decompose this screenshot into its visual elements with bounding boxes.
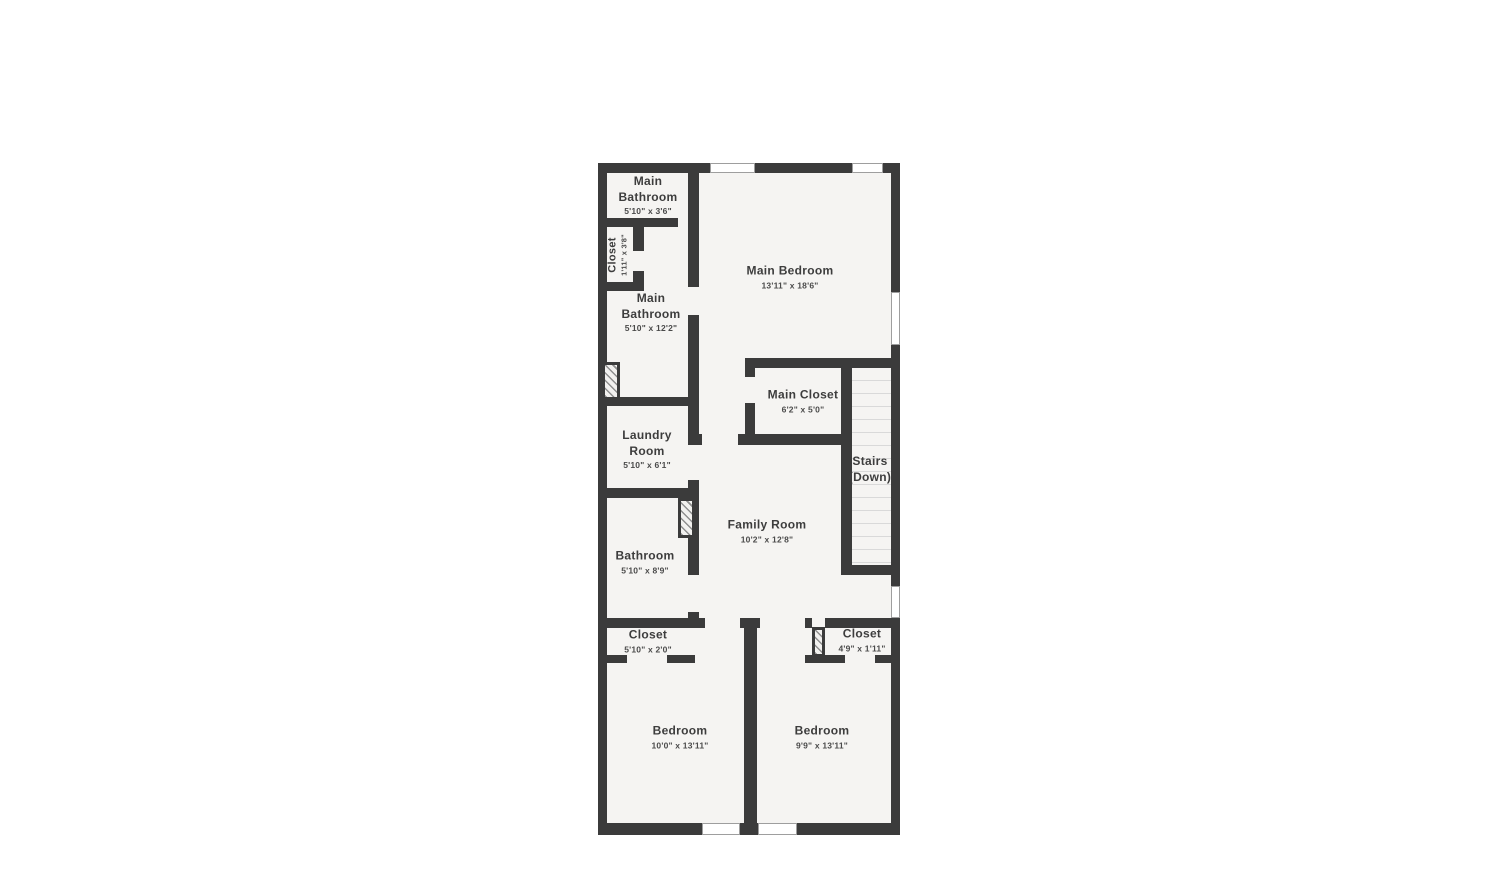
- room-label-main-bathroom-lower: Main Bathroom 5'10" x 12'2": [615, 291, 687, 333]
- wall-segment: [667, 655, 695, 663]
- wall-segment: [875, 655, 900, 663]
- room-name: Bedroom: [652, 724, 709, 740]
- room-dims: 5'10" x 2'0": [624, 644, 672, 654]
- room-label-closet-right: Closet 4'9" x 1'11": [838, 627, 885, 654]
- wall-segment: [891, 345, 900, 586]
- fixture-hatch: [812, 627, 825, 657]
- room-dims: 5'10" x 8'9": [615, 565, 674, 575]
- room-dims: 5'10" x 12'2": [615, 323, 687, 333]
- room-label-bedroom-left: Bedroom 10'0" x 13'11": [652, 724, 709, 751]
- room-label-main-closet: Main Closet 6'2" x 5'0": [768, 388, 839, 415]
- room-name: Main Bathroom: [612, 174, 684, 205]
- window: [702, 823, 740, 835]
- room-label-bedroom-right: Bedroom 9'9" x 13'11": [795, 724, 850, 751]
- wall-segment: [745, 358, 900, 368]
- wall-segment: [738, 434, 852, 445]
- wall-segment: [598, 618, 699, 628]
- wall-segment: [891, 618, 900, 835]
- window: [710, 163, 755, 173]
- room-name: Bathroom: [615, 549, 674, 565]
- room-name: Stairs: [849, 454, 891, 470]
- window: [891, 586, 900, 618]
- fixture-hatch: [602, 362, 620, 400]
- room-dims: 10'0" x 13'11": [652, 740, 709, 750]
- wall-segment: [598, 488, 688, 498]
- room-label-main-bathroom-upper: Main Bathroom 5'10" x 3'6": [612, 174, 684, 216]
- wall-segment: [633, 218, 644, 251]
- room-dims: 5'10" x 6'1": [618, 460, 676, 470]
- wall-segment: [598, 163, 710, 173]
- room-dims: 13'11" x 18'6": [747, 280, 834, 290]
- wall-segment: [598, 655, 627, 663]
- wall-segment: [688, 173, 699, 287]
- wall-segment: [688, 434, 702, 445]
- wall-segment: [755, 163, 852, 173]
- room-label-laundry-room: Laundry Room 5'10" x 6'1": [618, 428, 676, 470]
- wall-segment: [744, 618, 757, 835]
- wall-segment: [598, 282, 644, 291]
- room-name: Laundry Room: [618, 428, 676, 459]
- room-name: Family Room: [728, 518, 807, 534]
- room-label-bathroom: Bathroom 5'10" x 8'9": [615, 549, 674, 576]
- room-dims: 4'9" x 1'11": [838, 643, 885, 653]
- room-label-closet-left: Closet 5'10" x 2'0": [624, 628, 672, 655]
- room-label-stairs: Stairs (Down): [849, 454, 891, 484]
- room-dims: 5'10" x 3'6": [612, 206, 684, 216]
- wall-segment: [745, 358, 755, 377]
- room-dims: 9'9" x 13'11": [795, 740, 850, 750]
- room-name: Main Closet: [768, 388, 839, 404]
- window: [758, 823, 797, 835]
- window: [891, 292, 900, 345]
- room-name: Main Bedroom: [747, 264, 834, 280]
- wall-segment: [805, 655, 845, 663]
- room-name: Bedroom: [795, 724, 850, 740]
- wall-segment: [797, 823, 900, 835]
- page: { "colors": { "wall": "#3b3b3b", "floor"…: [0, 0, 1500, 879]
- room-dims: 10'2" x 12'8": [728, 534, 807, 544]
- room-dims: 1'11" x 3'8": [620, 234, 629, 276]
- wall-segment: [805, 618, 812, 628]
- wall-segment: [891, 163, 900, 292]
- room-name: Closet: [624, 628, 672, 644]
- wall-segment: [841, 565, 900, 575]
- window: [852, 163, 883, 173]
- floor-plan: Main Bathroom 5'10" x 3'6" Closet 1'11" …: [598, 163, 900, 835]
- fixture-hatch: [678, 498, 695, 538]
- room-label-hall-closet: Closet 1'11" x 3'8": [605, 234, 628, 276]
- room-label-family-room: Family Room 10'2" x 12'8": [728, 518, 807, 545]
- room-name: Closet: [605, 234, 619, 276]
- wall-segment: [688, 315, 699, 445]
- room-dims: 6'2" x 5'0": [768, 404, 839, 414]
- room-name: Closet: [838, 627, 885, 643]
- wall-segment: [598, 823, 702, 835]
- room-label-main-bedroom: Main Bedroom 13'11" x 18'6": [747, 264, 834, 291]
- wall-segment: [699, 618, 705, 628]
- room-name: Main Bathroom: [615, 291, 687, 322]
- room-dims: (Down): [849, 470, 891, 484]
